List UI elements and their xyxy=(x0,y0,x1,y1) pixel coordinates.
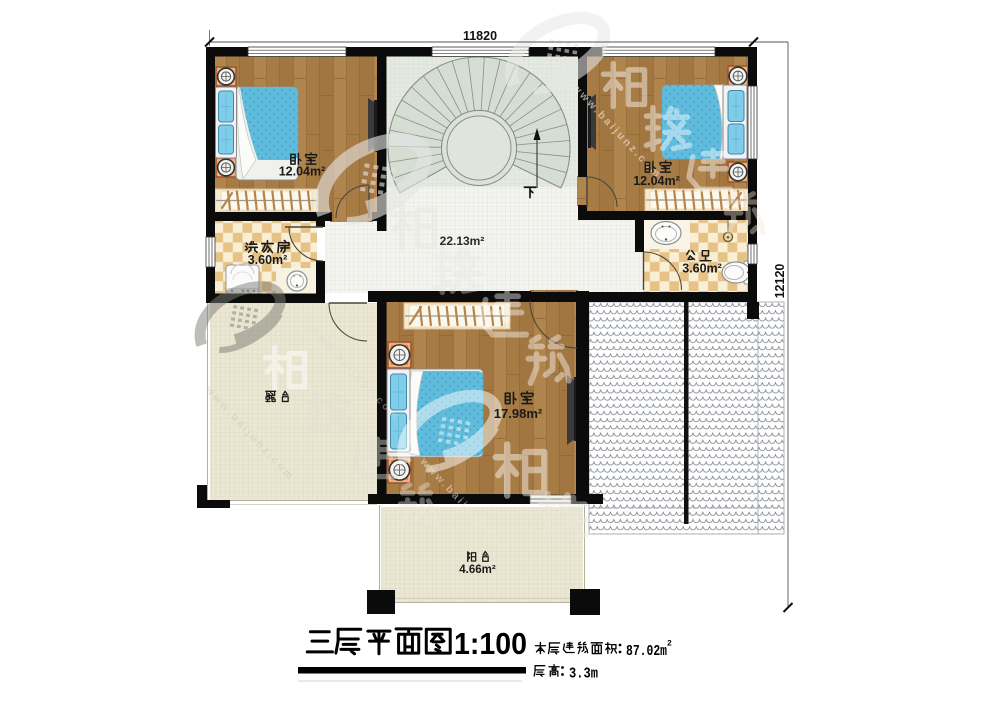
svg-text:12.04m²: 12.04m² xyxy=(633,174,680,188)
svg-text:22.13m²: 22.13m² xyxy=(440,234,485,248)
svg-text:12120: 12120 xyxy=(773,264,787,299)
svg-text:4.66m²: 4.66m² xyxy=(459,564,496,576)
svg-text:11820: 11820 xyxy=(463,29,497,43)
svg-text:87.02m: 87.02m xyxy=(626,643,667,660)
svg-text:3.60m²: 3.60m² xyxy=(248,253,288,267)
svg-text:3.60m²: 3.60m² xyxy=(682,262,722,276)
svg-text:12.04m²: 12.04m² xyxy=(279,165,326,179)
svg-text:3.3m: 3.3m xyxy=(569,666,598,683)
svg-text:2: 2 xyxy=(667,640,672,649)
svg-text:1:100: 1:100 xyxy=(454,626,527,661)
svg-text:17.98m²: 17.98m² xyxy=(494,406,543,421)
